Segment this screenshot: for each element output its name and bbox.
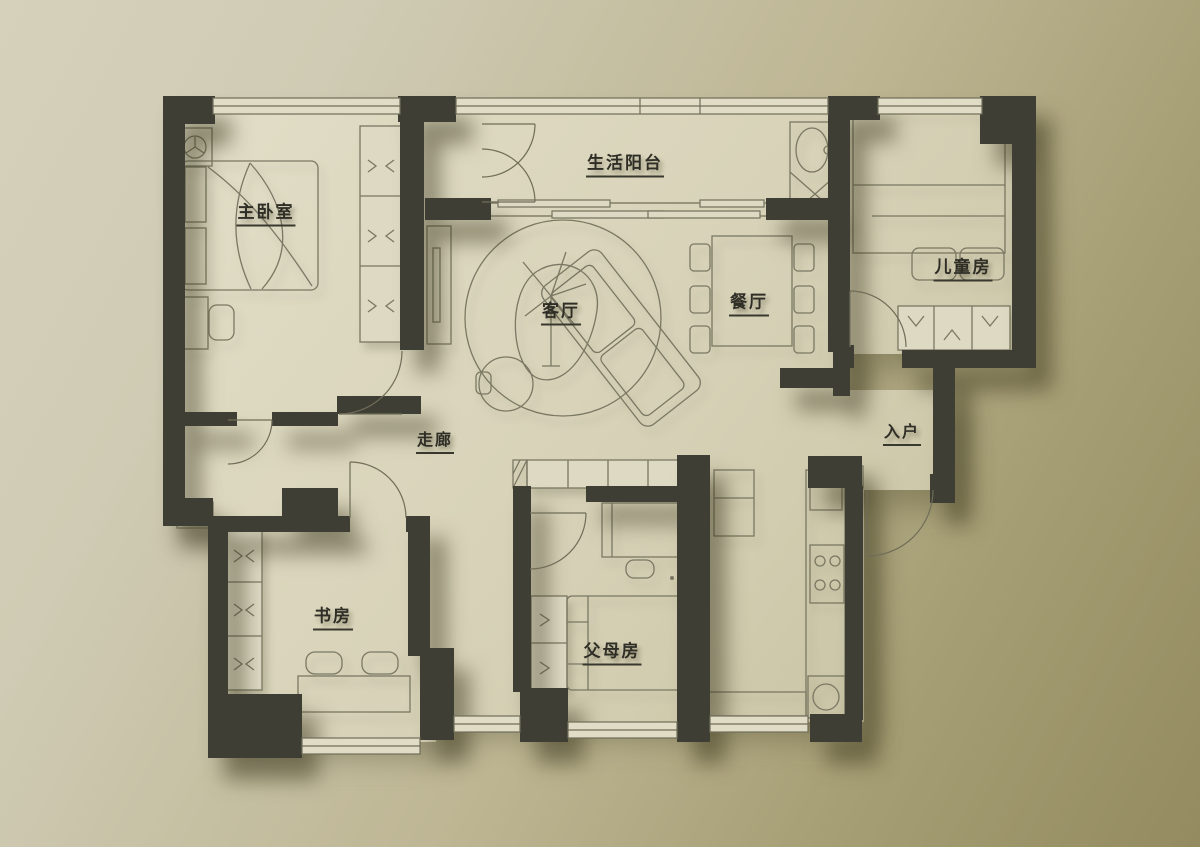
- room-label-study: 书房: [313, 602, 353, 631]
- room-label-children-room: 儿童房: [934, 253, 993, 282]
- wall-left-master: [163, 96, 185, 428]
- window-icon: [454, 716, 520, 732]
- window-icon: [568, 722, 677, 738]
- window-icon: [213, 98, 400, 114]
- wall-bath-sw: [163, 498, 213, 526]
- wall-slider-right-chunk: [766, 198, 830, 220]
- room-label-living-balcony: 生活阳台: [586, 149, 664, 178]
- entry-door-swing-icon: [867, 490, 933, 556]
- wall-children-bottom: [902, 350, 1024, 368]
- wall-children-door-stub: [840, 345, 854, 368]
- wall-kitchen-se: [810, 714, 862, 742]
- wardrobe-icon: [226, 528, 262, 690]
- wall-bath-inner-chunk: [282, 488, 338, 516]
- wardrobe-icon: [360, 126, 402, 342]
- room-label-master-bedroom: 主卧室: [237, 198, 296, 227]
- wall-study-right: [408, 516, 430, 656]
- wall-dining-se-horiz: [780, 368, 835, 388]
- wall-study-sw: [208, 694, 302, 758]
- floor-plan-stage: 主卧室 生活阳台 儿童房 客厅 餐厅 入户 走廊 书房 父母房: [0, 0, 1200, 847]
- window-icon: [710, 716, 808, 732]
- wall-parents-left: [513, 486, 531, 692]
- window-icon: [302, 738, 420, 754]
- wall-corridor-top: [337, 396, 421, 414]
- wall-slider-left-chunk: [425, 198, 491, 220]
- room-label-entrance: 入户: [883, 418, 921, 446]
- wall-children-se: [1018, 330, 1036, 368]
- wall-parents-sw: [520, 688, 568, 742]
- wall-kitchen-ne: [808, 456, 862, 488]
- floor-kitchen: [684, 450, 864, 722]
- wall-study-top: [208, 516, 350, 532]
- room-label-living-room: 客厅: [541, 297, 581, 326]
- wardrobe-icon: [898, 306, 1010, 350]
- wall-master-living-divider: [400, 104, 424, 350]
- wall-children-top-stub: [850, 96, 880, 120]
- room-label-corridor: 走廊: [416, 426, 454, 454]
- wall-kitchen-left: [677, 455, 710, 742]
- room-label-parents-room: 父母房: [583, 637, 642, 666]
- wall-master-bottom-b: [272, 412, 338, 426]
- window-icon: [456, 98, 828, 114]
- dot: [670, 576, 674, 580]
- wall-vestibule-right: [933, 368, 955, 503]
- wall-master-bottom-a: [185, 412, 237, 426]
- wall-kitchen-right: [845, 486, 863, 720]
- wall-parents-top: [586, 486, 690, 502]
- room-label-dining-room: 餐厅: [729, 288, 769, 317]
- window-icon: [878, 98, 982, 114]
- wall-study-se: [420, 648, 454, 740]
- wall-study-left: [208, 516, 228, 702]
- wall-children-right: [1012, 96, 1036, 358]
- wall-balcony-children-divider: [828, 96, 850, 352]
- floor-plan-drawing: [0, 0, 1200, 847]
